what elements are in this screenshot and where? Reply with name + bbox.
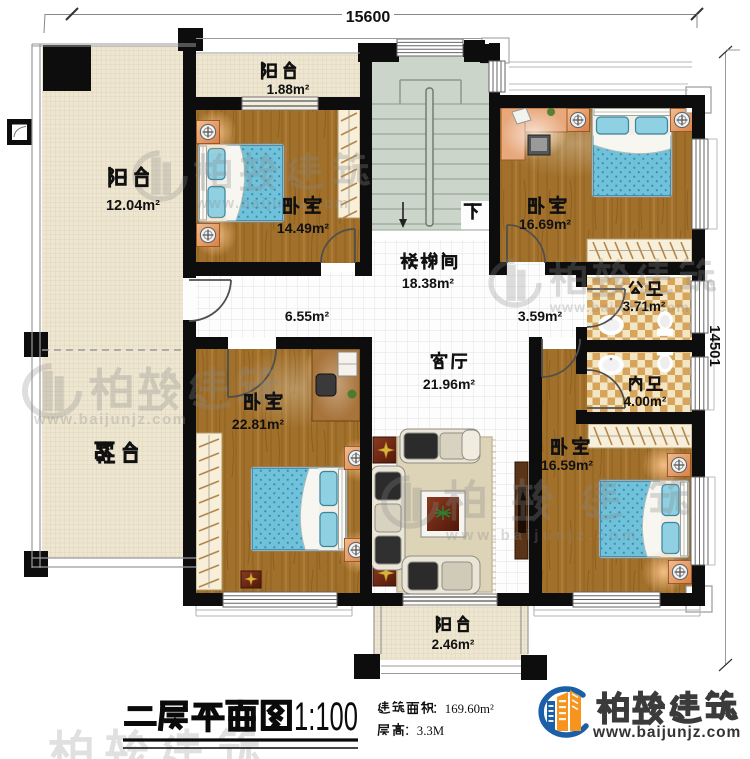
svg-text:：169.60m²: ：169.60m² (432, 702, 494, 716)
svg-text:www.baijunjz.com: www.baijunjz.com (592, 724, 741, 741)
svg-text:14501: 14501 (706, 325, 723, 367)
svg-text:www.baijunjz.com: www.baijunjz.com (549, 299, 690, 315)
svg-text:1.88m²: 1.88m² (267, 82, 310, 97)
svg-text:22.81m²: 22.81m² (232, 416, 284, 432)
svg-text:12.04m²: 12.04m² (106, 198, 160, 214)
svg-text:16.59m²: 16.59m² (541, 457, 593, 473)
svg-text:：3.3M: ：3.3M (404, 724, 444, 738)
svg-text:3.59m²: 3.59m² (518, 308, 563, 324)
svg-text:2.46m²: 2.46m² (432, 637, 475, 652)
svg-text:14.49m²: 14.49m² (277, 220, 329, 236)
svg-text:3.71m²: 3.71m² (623, 299, 666, 314)
svg-text:21.96m²: 21.96m² (423, 376, 475, 392)
svg-text:16.69m²: 16.69m² (519, 216, 571, 232)
svg-text:4.00m²: 4.00m² (624, 394, 667, 409)
svg-text:6.55m²: 6.55m² (285, 308, 330, 324)
svg-text:www.baijunjz.com: www.baijunjz.com (195, 195, 349, 212)
svg-text:www.baijunjz.com: www.baijunjz.com (33, 411, 187, 428)
svg-text:www.baijunjz.com: www.baijunjz.com (445, 527, 639, 544)
svg-text:18.38m²: 18.38m² (402, 275, 454, 291)
svg-text:15600: 15600 (346, 9, 391, 26)
svg-text:1:100: 1:100 (294, 695, 358, 739)
